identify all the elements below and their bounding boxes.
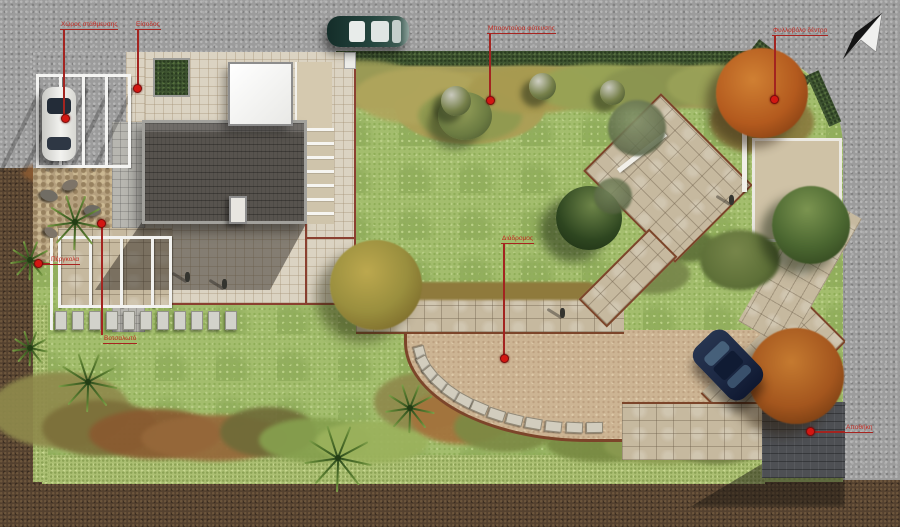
annotation-entrance: Είσοδος [135,21,161,30]
leader-line [489,33,491,97]
trellis [307,128,334,224]
foliage-over-terrace [608,100,666,156]
stepping-stone [157,311,169,330]
terrace-bench [742,132,747,192]
car-rear-window [47,137,71,150]
leader-dot [770,95,779,104]
stepping-stone [225,311,237,330]
annotation-shed: Αποθήκη [845,424,873,433]
stepping-stone [123,311,135,330]
leader-dot [34,259,43,268]
leader-line [137,29,139,86]
leader-dot [500,354,509,363]
leader-dot [97,219,106,228]
pergola-wall [50,238,53,330]
leader-line [503,243,505,355]
landscape-plan: Χώρος στάθμευσης Είσοδος Μπορντούρα φύτε… [0,0,900,527]
person [185,272,190,282]
stepping-stone [55,311,67,330]
leader-dot [486,96,495,105]
patio-divider [305,237,356,239]
annotation-pergola: Πέργκολα [50,256,80,265]
palm-core [72,219,78,225]
leader-line [101,226,103,335]
car-sunroof [371,21,389,42]
shed-forecourt [622,402,762,460]
foliage-over-terrace [594,178,632,214]
annotation-planting-border: Μπορντούρα φύτευσης [487,25,556,34]
leader-line [774,35,776,96]
stepping-stone [106,311,118,330]
stepping-stone [72,311,84,330]
entrance-planter [153,58,190,97]
car-windshield [47,98,71,114]
ball-shrub [441,86,471,116]
arc-paver-stone [565,422,582,434]
leader-line [63,29,65,116]
palm-core [407,405,413,411]
arc-paver-stone [524,416,543,430]
annotation-parking: Χώρος στάθμευσης [60,21,118,30]
pergola-beam [58,305,172,308]
north-arrow [828,8,892,68]
person [729,195,734,205]
leader-line [813,431,845,433]
chimney [229,196,247,224]
stepping-stone [208,311,220,330]
palm-core [335,455,341,461]
person [222,279,227,289]
stepping-stone [89,311,101,330]
car-sunroof [349,21,365,42]
autumn-tree-west [330,240,422,330]
pergola-beam [120,236,123,308]
house-roof [142,120,307,224]
pergola-beam [89,236,92,308]
carport-beam [82,76,85,168]
arc-paver-stone [586,422,603,433]
carport-beam [128,76,131,168]
street-car [327,16,409,47]
arc-paver-stone [545,420,563,433]
palm-core [85,379,91,385]
leader-dot [133,84,142,93]
leader-dot [806,427,815,436]
carport-beam [105,76,108,168]
pergola-beam [58,236,61,308]
palm-core [27,345,33,351]
autumn-tree-ne [716,48,808,138]
stepping-stone-path [55,311,245,331]
carport-car [42,87,76,161]
stepping-stone [191,311,203,330]
stepping-stone [140,311,152,330]
carport-beam [36,165,131,168]
stepping-stone [174,311,186,330]
car-windshield [392,20,401,43]
palm-core [27,257,33,263]
walkway-hedge [400,282,596,300]
carport-beam [36,74,131,77]
leader-dot [61,114,70,123]
green-tree-right [772,186,850,264]
annotation-pebble-garden: Βοτσαλωτό [103,335,137,344]
annotation-deciduous-tree: Φυλλοβόλο δέντρο [772,27,828,36]
garden-gate [344,52,356,69]
person [560,308,565,318]
carport-beam [36,76,39,168]
pergola-beam [151,236,154,308]
annotation-walkway: Διάδρομος [501,235,534,244]
shrub-mass-ne [700,230,780,290]
skylight [228,62,293,126]
ball-shrub [529,73,556,100]
ball-shrub [600,80,625,105]
